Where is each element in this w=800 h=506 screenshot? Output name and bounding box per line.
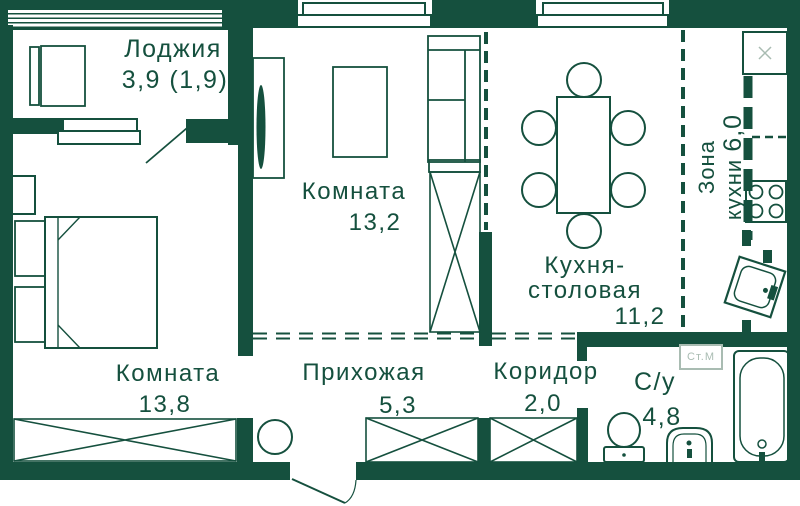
rug: [333, 67, 387, 157]
corner-sink: [725, 257, 785, 317]
hallway-area: 5,3: [338, 394, 458, 418]
kitchen-dining-label-2: столовая: [505, 279, 665, 303]
dining-chair: [522, 63, 645, 248]
room-bottom-label: Комната: [88, 362, 248, 386]
corridor-area: 2,0: [483, 392, 603, 416]
kitchen-zone-label: Зона кухни 6,0: [693, 92, 747, 242]
nightstand: [15, 221, 45, 342]
loggia-cabinet: [30, 46, 85, 106]
bathroom-label: С/у: [595, 370, 715, 394]
loggia-area: 3,9 (1,9): [95, 68, 255, 92]
hallway-label: Прихожая: [284, 361, 444, 385]
bed: [45, 217, 157, 348]
sofa: [428, 36, 480, 172]
tv-icon: [257, 85, 266, 169]
loggia-label: Лоджия: [93, 37, 253, 61]
room-top-area: 13,2: [315, 211, 435, 235]
washing-machine: Ст.М: [679, 344, 723, 370]
tv-cabinet: [253, 58, 284, 178]
bathroom-area: 4,8: [602, 405, 722, 429]
floor-plan: Ст.М Лоджия 3,9 (1,9) Комната 13,2 Кухня…: [0, 0, 800, 506]
bathtub: [734, 351, 789, 462]
room-bottom-area: 13,8: [105, 393, 225, 417]
kitchen-zone-line2: кухни 6,0: [720, 114, 747, 220]
dining-table: [557, 97, 610, 213]
entrance-door: [292, 479, 356, 503]
wardrobe-x: [14, 172, 577, 462]
room-top-label: Комната: [274, 180, 434, 204]
washbasin: [667, 428, 712, 462]
kitchen-dining-area: 11,2: [580, 305, 700, 329]
kitchen-sink: [743, 32, 787, 74]
kitchen-dining-label-1: Кухня-: [505, 254, 665, 278]
pouf: [258, 420, 292, 454]
balcony-door: [146, 128, 187, 163]
kitchen-zone-word1: Зона: [694, 140, 720, 194]
